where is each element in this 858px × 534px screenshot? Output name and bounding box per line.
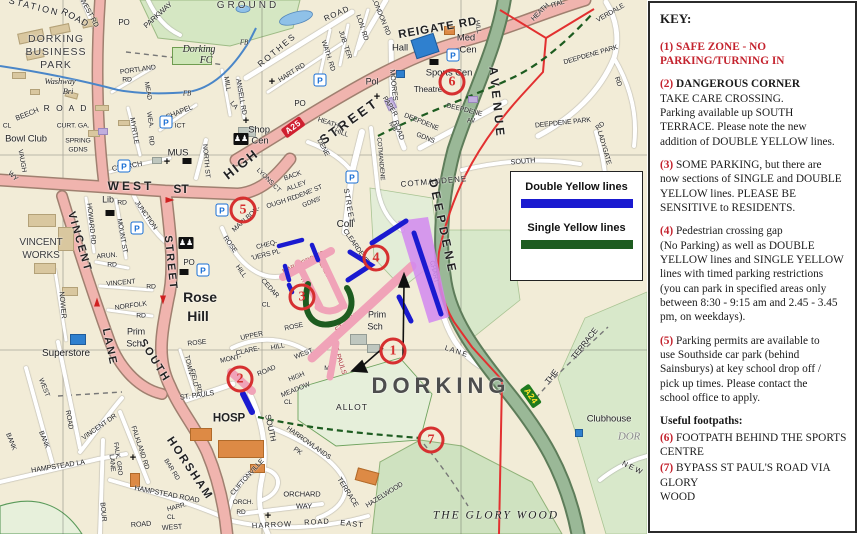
parking-icon: P [314,74,327,87]
legend-double-yellow-label: Double Yellow lines [520,181,633,193]
map-label: CL [284,400,292,407]
parking-icon: P [216,204,229,217]
map-label: Med [457,33,475,43]
building [575,429,583,437]
map-label: Bri [63,87,74,96]
map-label: Dorking [183,45,216,55]
map-label: Washway [44,77,75,86]
key-item: Useful footpaths: [660,414,847,428]
building [190,428,212,441]
map-marker-2: 2 [227,366,254,393]
map-label: GDNS [68,148,87,155]
key-item: (7) BYPASS ST PAUL'S ROAD VIA GLORYWOOD [660,461,847,504]
building [468,96,478,103]
building-marker [430,59,439,65]
map-label: Lib [102,196,114,205]
map-label: ROAD [304,518,330,527]
map-label: NOWER [58,291,68,319]
key-item: (2) DANGEROUS CORNERTAKE CARE CROSSING.P… [660,77,847,149]
map-label: Theatre [414,85,443,94]
building [367,344,380,353]
map-label: PO [183,259,194,267]
map-label: PO [294,100,305,108]
map-label: Bowl Club [5,134,47,144]
map-label: RD [236,510,245,517]
map-label: WAY [296,502,312,510]
map-label: SPRING [65,139,90,146]
one-way-arrow-icon [160,296,166,305]
map-label: RD [146,136,154,147]
map-label: BOUR [98,502,106,522]
map-label: FC [200,56,213,66]
map-label: ST [173,183,188,195]
building-marker [183,158,192,164]
toilets-icon [179,237,194,249]
building [350,334,367,345]
church-cross-icon: + [164,156,170,168]
map-label: Pol [366,78,379,87]
key-item: (5) Parking permits are available touse … [660,334,847,406]
church-cross-icon: + [243,115,249,127]
map-label: DORKING [28,34,84,45]
map-label: ORCHARD [283,490,320,498]
map-label: AV [467,119,475,126]
one-way-arrow-icon [166,197,175,203]
building-marker [106,210,115,216]
legend-single-yellow-label: Single Yellow lines [520,222,633,234]
map-label: WEST [108,180,155,192]
map-label: ICT [175,124,186,131]
parking-icon: P [131,222,144,235]
map-marker-5: 5 [230,197,257,224]
map-label: ORCH. [233,500,253,507]
map-label: CL [167,515,175,522]
map-label: Cen [251,136,268,146]
building [30,89,40,95]
map-label: GROUND [217,1,279,11]
map-label: RD [107,263,117,270]
parking-icon: P [447,49,460,62]
building [70,334,86,345]
map-label: CURT. GA. [57,124,90,131]
map-label: WORKS [22,251,59,261]
key-item: (6) FOOTPATH BEHIND THE SPORTSCENTRE [660,431,847,460]
map-label: Hall [392,43,408,53]
map-label: Prim [368,311,386,320]
map-label: MUS [168,148,189,158]
map-label: SOUTH [510,156,535,165]
parking-icon: P [346,171,359,184]
map-label: Cen [459,45,476,55]
key-panel: KEY: (1) SAFE ZONE - NOPARKING/TURNING I… [648,1,857,533]
key-title: KEY: [660,11,847,28]
map-label: Prim [127,328,145,337]
map-label: EAST [340,519,364,529]
map-label: FB [183,91,191,98]
map-label: Rose [183,290,217,304]
map-label: Clubhouse [587,414,632,424]
building [34,263,56,274]
map-label: Shop [248,125,270,135]
church-cross-icon: + [269,76,275,88]
building [12,72,26,79]
map-label: Sch [367,323,382,332]
building [152,157,162,164]
map-label: VINCENT [19,238,62,248]
church-cross-icon: + [130,452,136,464]
map-label: WEST [162,523,183,532]
legend-double-yellow-bar [521,199,633,208]
toilets-icon [234,133,249,145]
map-label: RD [122,78,132,85]
map-label: RD [136,314,146,321]
map-label: FB [240,40,248,47]
map-label: THE GLORY WOOD [433,510,559,522]
key-item: (3) SOME PARKING, but there arenow secti… [660,158,847,215]
map-marker-1: 1 [380,338,407,365]
building [98,128,108,135]
key-items: (1) SAFE ZONE - NOPARKING/TURNING IN(2) … [660,40,847,505]
map-label: PO [118,19,129,27]
map-label: Superstore [42,349,90,359]
map-label: HOSP [213,413,245,425]
map-label: DORKING [372,375,511,397]
map-label: BUSINESS [25,47,86,58]
key-item: (1) SAFE ZONE - NOPARKING/TURNING IN [660,40,847,69]
map-label: CL [262,303,271,310]
building [28,214,56,227]
parking-icon: P [118,160,131,173]
map-legend: Double Yellow lines Single Yellow lines [510,171,643,281]
map-label: ALLOT [336,403,368,412]
map-marker-4: 4 [363,245,390,272]
map-label: RD [117,201,127,208]
page: Double Yellow lines Single Yellow lines … [0,0,858,534]
map-marker-6: 6 [439,69,466,96]
map-marker-3: 3 [289,284,316,311]
map-label: PARK [40,60,72,71]
map-label: Sch [126,340,141,349]
map-marker-7: 7 [418,427,445,454]
church-cross-icon: + [374,91,380,103]
map-label: RD [146,285,156,292]
map-label: R O A D [44,104,89,113]
map-label: DOR [618,432,640,443]
map-label: CL [3,124,12,131]
map-label: HILL [473,20,482,34]
building-marker [180,269,189,275]
parking-icon: P [197,264,210,277]
parking-icon: P [160,116,173,129]
building [95,105,109,111]
map-label: ROAD [131,520,152,529]
map-label: Hill [187,309,208,323]
map-label: HARROW [252,520,293,530]
map: Double Yellow lines Single Yellow lines … [0,0,647,534]
building [218,440,264,458]
map-label: MILL [221,76,230,92]
church-cross-icon: + [265,510,271,522]
map-label: WEA. [144,111,153,128]
one-way-arrow-icon [94,298,100,307]
map-label: MS [324,366,334,373]
key-item: (4) Pedestrian crossing gap(No Parking) … [660,224,847,324]
legend-single-yellow-bar [521,240,633,249]
